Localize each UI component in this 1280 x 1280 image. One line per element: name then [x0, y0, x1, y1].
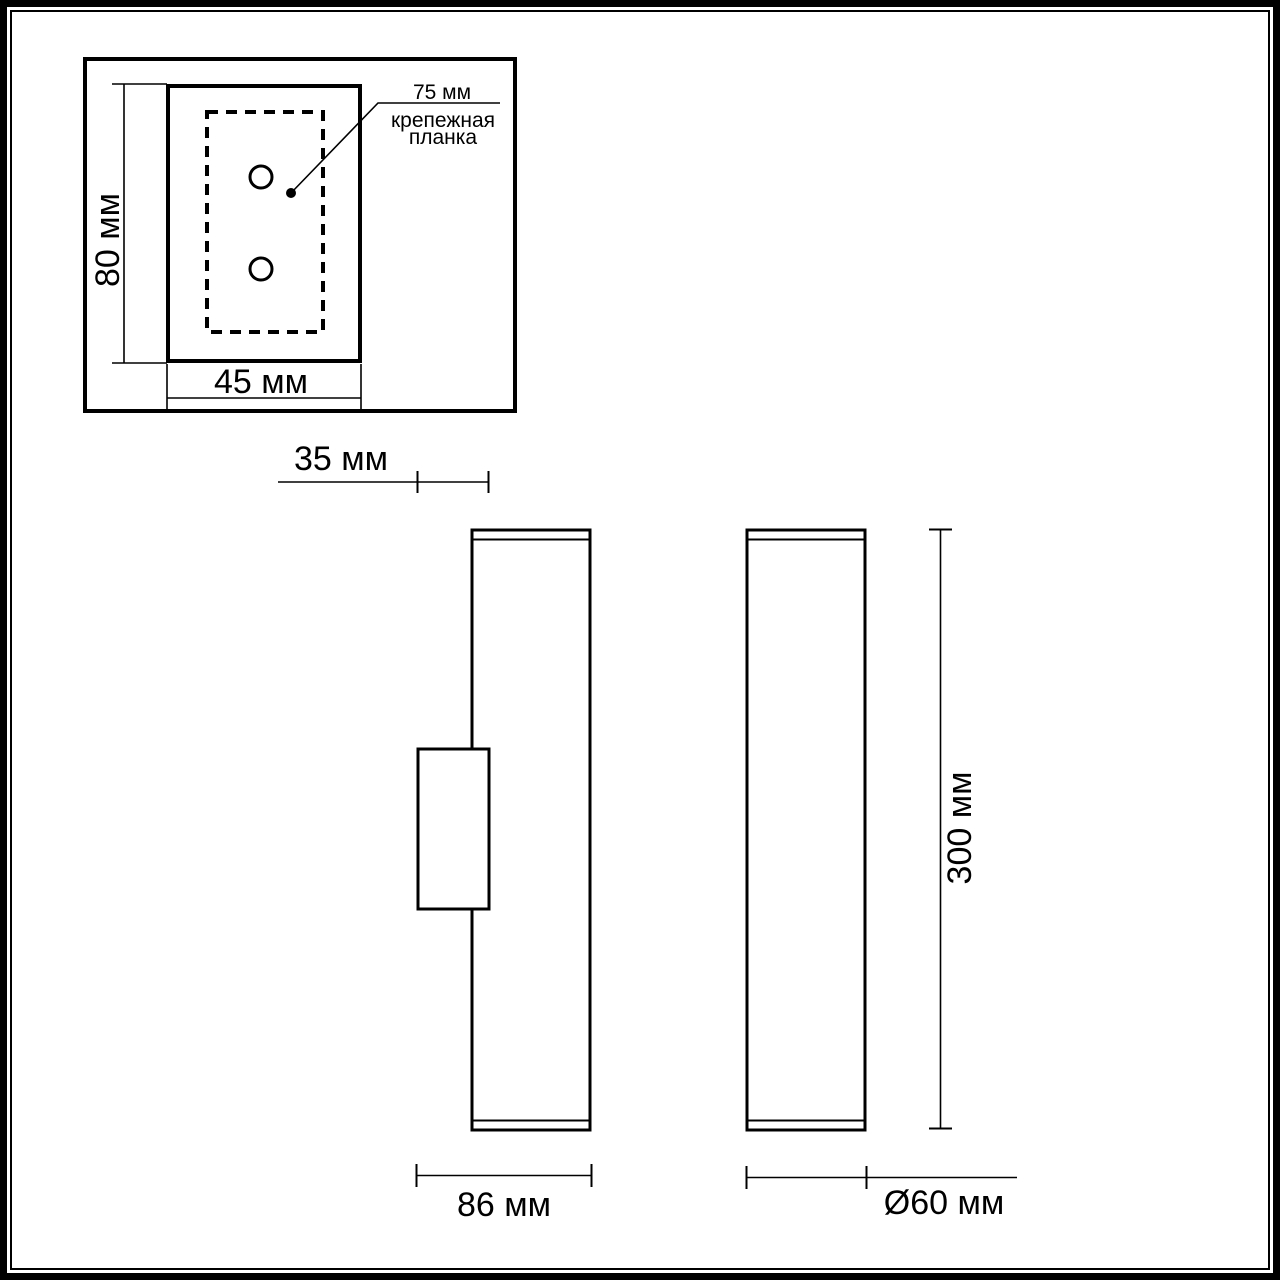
dimension-60mm: Ø60 мм — [746, 1166, 1017, 1222]
plate-caption-line2: планка — [409, 126, 478, 149]
side-view: 86 мм — [416, 530, 592, 1224]
detail-view: 75 мм крепежная планка 80 мм 45 мм — [85, 59, 515, 411]
front-view-body — [747, 530, 865, 1130]
page-border-inner — [11, 11, 1269, 1269]
diameter-label: Ø60 мм — [884, 1184, 1004, 1222]
dimension-80mm: 80 мм — [89, 84, 167, 363]
offset-dimension: 35 мм — [278, 440, 489, 493]
height-label: 80 мм — [89, 193, 127, 287]
depth-label: 86 мм — [457, 1186, 551, 1224]
height-300-label: 300 мм — [941, 772, 979, 885]
dimension-86mm: 86 мм — [416, 1164, 592, 1224]
wall-mount-block — [418, 749, 489, 909]
dimension-drawing-page: 75 мм крепежная планка 80 мм 45 мм 35 мм — [0, 0, 1280, 1280]
page-border-outer — [4, 4, 1277, 1277]
mounting-plate-dashed-outline — [207, 112, 323, 332]
mounting-hole-top — [250, 166, 272, 188]
plate-length-label: 75 мм — [413, 81, 471, 104]
dimension-45mm: 45 мм — [167, 363, 361, 409]
dimension-300mm: 300 мм — [929, 529, 979, 1129]
backplate-outline — [168, 86, 360, 361]
mounting-hole-bottom — [250, 258, 272, 280]
width-label: 45 мм — [214, 363, 308, 401]
front-view: 300 мм Ø60 мм — [746, 529, 1017, 1222]
offset-label: 35 мм — [294, 440, 388, 478]
technical-drawing: 75 мм крепежная планка 80 мм 45 мм 35 мм — [0, 0, 1280, 1280]
